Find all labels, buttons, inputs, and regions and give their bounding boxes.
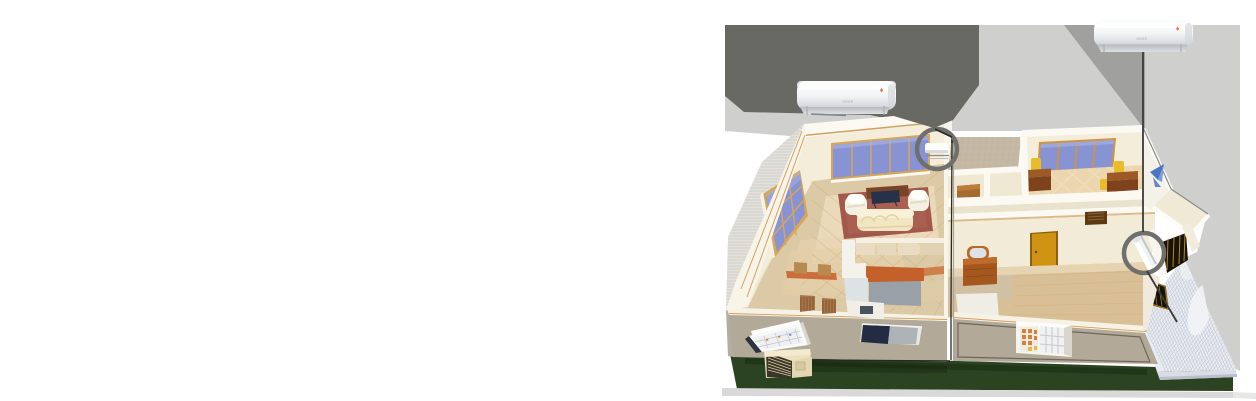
svg-text:GREE: GREE bbox=[842, 100, 854, 104]
svg-text:GREE: GREE bbox=[1136, 37, 1148, 41]
